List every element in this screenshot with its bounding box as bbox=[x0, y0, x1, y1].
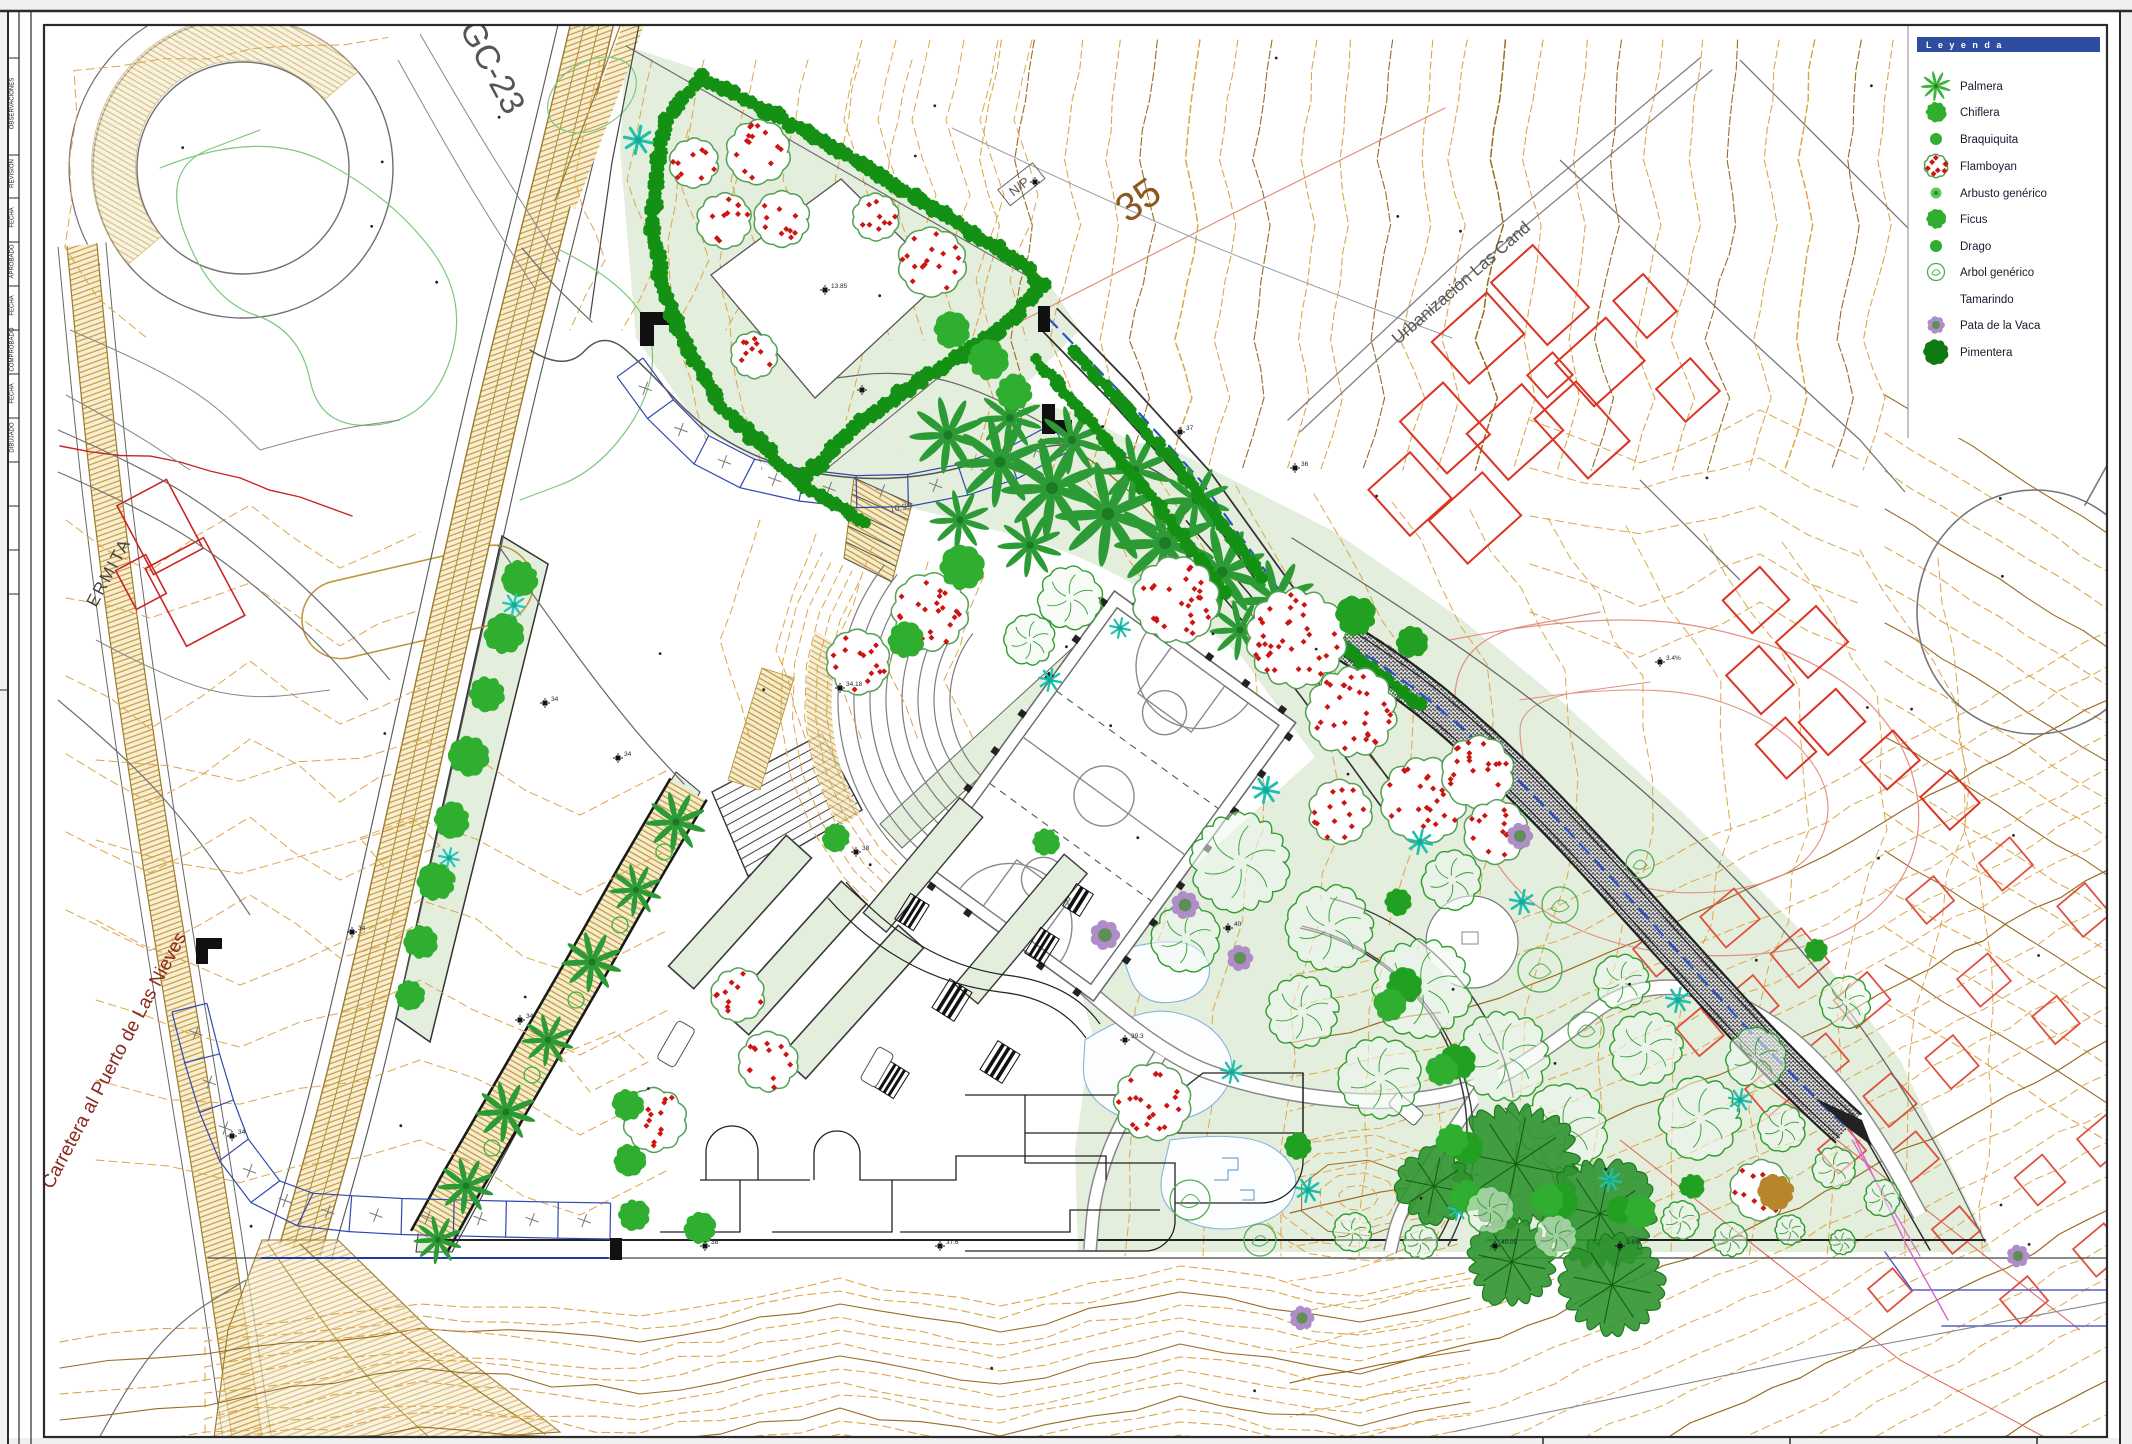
svg-text:Ficus: Ficus bbox=[1960, 214, 1988, 226]
svg-text:37: 37 bbox=[1186, 425, 1194, 432]
svg-text:Arbusto genérico: Arbusto genérico bbox=[1960, 188, 2047, 200]
svg-text:COMPROBADO: COMPROBADO bbox=[10, 327, 16, 371]
svg-text:34: 34 bbox=[624, 751, 632, 758]
svg-text:DIBUJADO: DIBUJADO bbox=[10, 422, 16, 453]
svg-text:34: 34 bbox=[238, 1129, 246, 1136]
svg-text:L e y e n d a: L e y e n d a bbox=[1926, 40, 2003, 50]
svg-text:38: 38 bbox=[862, 845, 870, 852]
svg-text:13.85: 13.85 bbox=[831, 283, 848, 290]
svg-text:FECHA: FECHA bbox=[10, 295, 16, 315]
svg-text:36: 36 bbox=[1301, 461, 1309, 468]
svg-text:34: 34 bbox=[358, 925, 366, 932]
svg-text:34: 34 bbox=[551, 696, 559, 703]
svg-text:REVISIÓN: REVISIÓN bbox=[9, 159, 16, 188]
svg-text:37.6: 37.6 bbox=[946, 1239, 959, 1246]
svg-text:Braquiquita: Braquiquita bbox=[1960, 134, 2019, 146]
svg-text:39.3: 39.3 bbox=[1131, 1033, 1144, 1040]
svg-text:Pimentera: Pimentera bbox=[1960, 347, 2013, 359]
svg-text:Arbol genérico: Arbol genérico bbox=[1960, 267, 2034, 279]
svg-text:3.4%: 3.4% bbox=[1666, 655, 1681, 662]
svg-text:Flamboyan: Flamboyan bbox=[1960, 161, 2017, 173]
svg-text:3.6%: 3.6% bbox=[1626, 1239, 1641, 1246]
svg-text:Palmera: Palmera bbox=[1960, 81, 2003, 93]
svg-text:OBSERVACIONES: OBSERVACIONES bbox=[10, 78, 16, 129]
svg-text:APROBADO: APROBADO bbox=[10, 244, 16, 278]
svg-text:40.05: 40.05 bbox=[1501, 1239, 1518, 1246]
svg-text:40: 40 bbox=[1234, 921, 1242, 928]
svg-text:Tamarindo: Tamarindo bbox=[1960, 294, 2014, 306]
svg-text:Chiflera: Chiflera bbox=[1960, 107, 2000, 119]
svg-text:Pata de la Vaca: Pata de la Vaca bbox=[1960, 320, 2041, 332]
svg-text:FECHA: FECHA bbox=[10, 383, 16, 403]
svg-text:34: 34 bbox=[526, 1013, 534, 1020]
svg-text:38: 38 bbox=[711, 1239, 719, 1246]
svg-text:FECHA: FECHA bbox=[10, 207, 16, 227]
svg-text:34.18: 34.18 bbox=[846, 681, 863, 688]
svg-text:Drago: Drago bbox=[1960, 241, 1991, 253]
